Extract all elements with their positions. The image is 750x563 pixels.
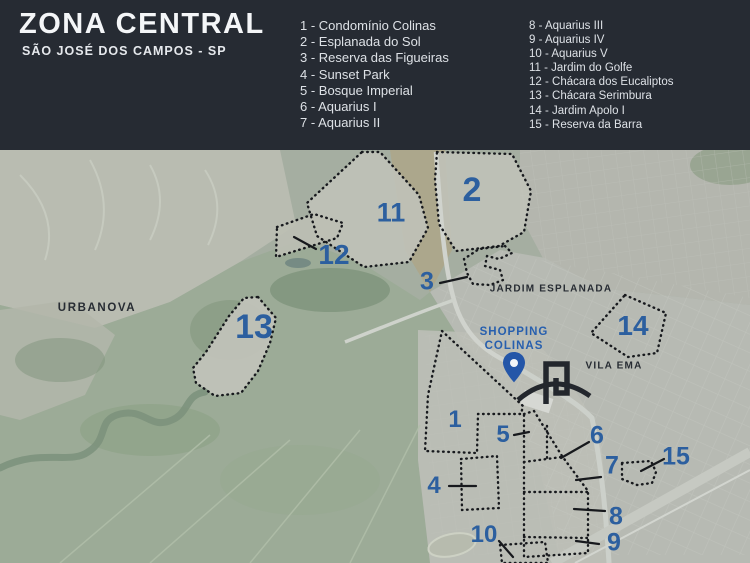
- map-marker-7: 7: [605, 454, 619, 479]
- area-label-jardim-esplanada: JARDIM ESPLANADA: [490, 284, 613, 295]
- header: ZONA CENTRAL SÃO JOSÉ DOS CAMPOS - SP 1 …: [0, 0, 750, 150]
- poi-label-shopping-colinas: SHOPPING COLINAS: [480, 325, 549, 353]
- poi-label-line2: COLINAS: [480, 339, 549, 353]
- map-marker-13: 13: [235, 310, 273, 344]
- legend-item-12: 12 - Chácara dos Eucaliptos: [529, 75, 673, 89]
- legend-item-13: 13 - Chácara Serimbura: [529, 89, 673, 103]
- map-marker-11: 11: [377, 200, 406, 227]
- legend-item-10: 10 - Aquarius V: [529, 47, 673, 61]
- page-title: ZONA CENTRAL: [19, 8, 265, 41]
- map-graphic: [0, 150, 750, 563]
- legend-item-7: 7 - Aquarius II: [300, 115, 449, 131]
- map-marker-14: 14: [617, 312, 648, 340]
- map-marker-10: 10: [471, 523, 498, 547]
- map-marker-5: 5: [496, 423, 509, 447]
- legend-item-1: 1 - Condomínio Colinas: [300, 18, 449, 34]
- legend-item-14: 14 - Jardim Apolo I: [529, 104, 673, 118]
- legend-item-3: 3 - Reserva das Figueiras: [300, 50, 449, 66]
- satellite-map: URBANOVA JARDIM ESPLANADA VILA EMA SHOPP…: [0, 150, 750, 563]
- legend-item-5: 5 - Bosque Imperial: [300, 83, 449, 99]
- legend-item-6: 6 - Aquarius I: [300, 99, 449, 115]
- legend-column-2: 8 - Aquarius III 9 - Aquarius IV 10 - Aq…: [529, 19, 673, 132]
- infographic-map: ZONA CENTRAL SÃO JOSÉ DOS CAMPOS - SP 1 …: [0, 0, 750, 563]
- legend-item-11: 11 - Jardim do Golfe: [529, 61, 673, 75]
- map-marker-9: 9: [607, 531, 621, 556]
- page-subtitle: SÃO JOSÉ DOS CAMPOS - SP: [22, 44, 227, 58]
- legend-item-15: 15 - Reserva da Barra: [529, 118, 673, 132]
- map-background: [0, 150, 750, 563]
- area-label-urbanova: URBANOVA: [58, 302, 136, 314]
- legend-item-8: 8 - Aquarius III: [529, 19, 673, 33]
- area-label-vila-ema: VILA EMA: [585, 361, 642, 372]
- map-marker-12: 12: [318, 241, 349, 269]
- map-marker-2: 2: [463, 173, 482, 207]
- legend-column-1: 1 - Condomínio Colinas 2 - Esplanada do …: [300, 18, 449, 131]
- map-marker-4: 4: [427, 474, 440, 498]
- map-marker-3: 3: [420, 270, 434, 295]
- legend-item-9: 9 - Aquarius IV: [529, 33, 673, 47]
- legend-item-2: 2 - Esplanada do Sol: [300, 34, 449, 50]
- map-marker-6: 6: [590, 424, 604, 449]
- legend-item-4: 4 - Sunset Park: [300, 67, 449, 83]
- map-marker-1: 1: [448, 408, 461, 432]
- poi-label-line1: SHOPPING: [480, 325, 549, 339]
- map-marker-8: 8: [609, 505, 623, 530]
- map-marker-15: 15: [662, 445, 690, 470]
